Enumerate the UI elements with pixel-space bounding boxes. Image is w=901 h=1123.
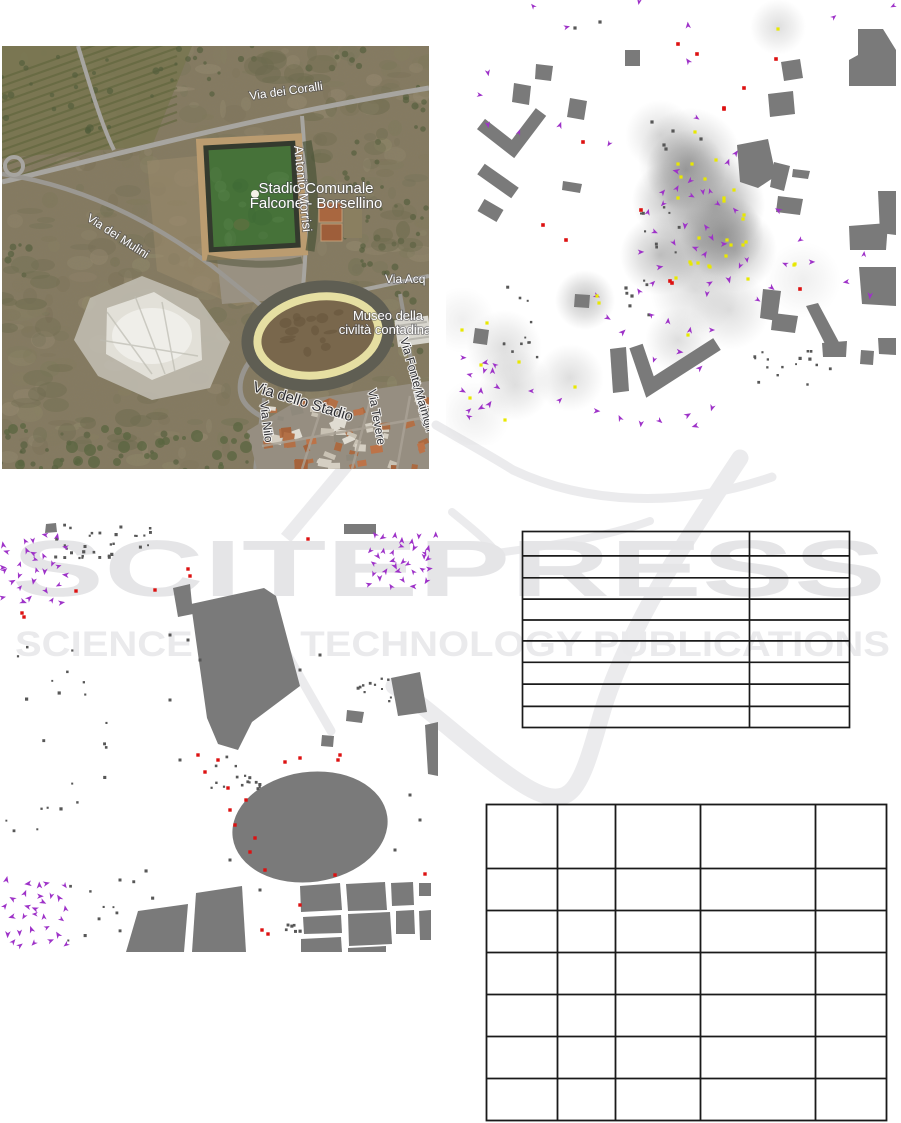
svg-text:Museo della: Museo della [353, 308, 424, 323]
svg-text:Via Acq: Via Acq [385, 272, 425, 286]
svg-text:civiltà contadina: civiltà contadina [339, 322, 429, 337]
svg-text:Falcone - Borsellino: Falcone - Borsellino [250, 195, 383, 212]
